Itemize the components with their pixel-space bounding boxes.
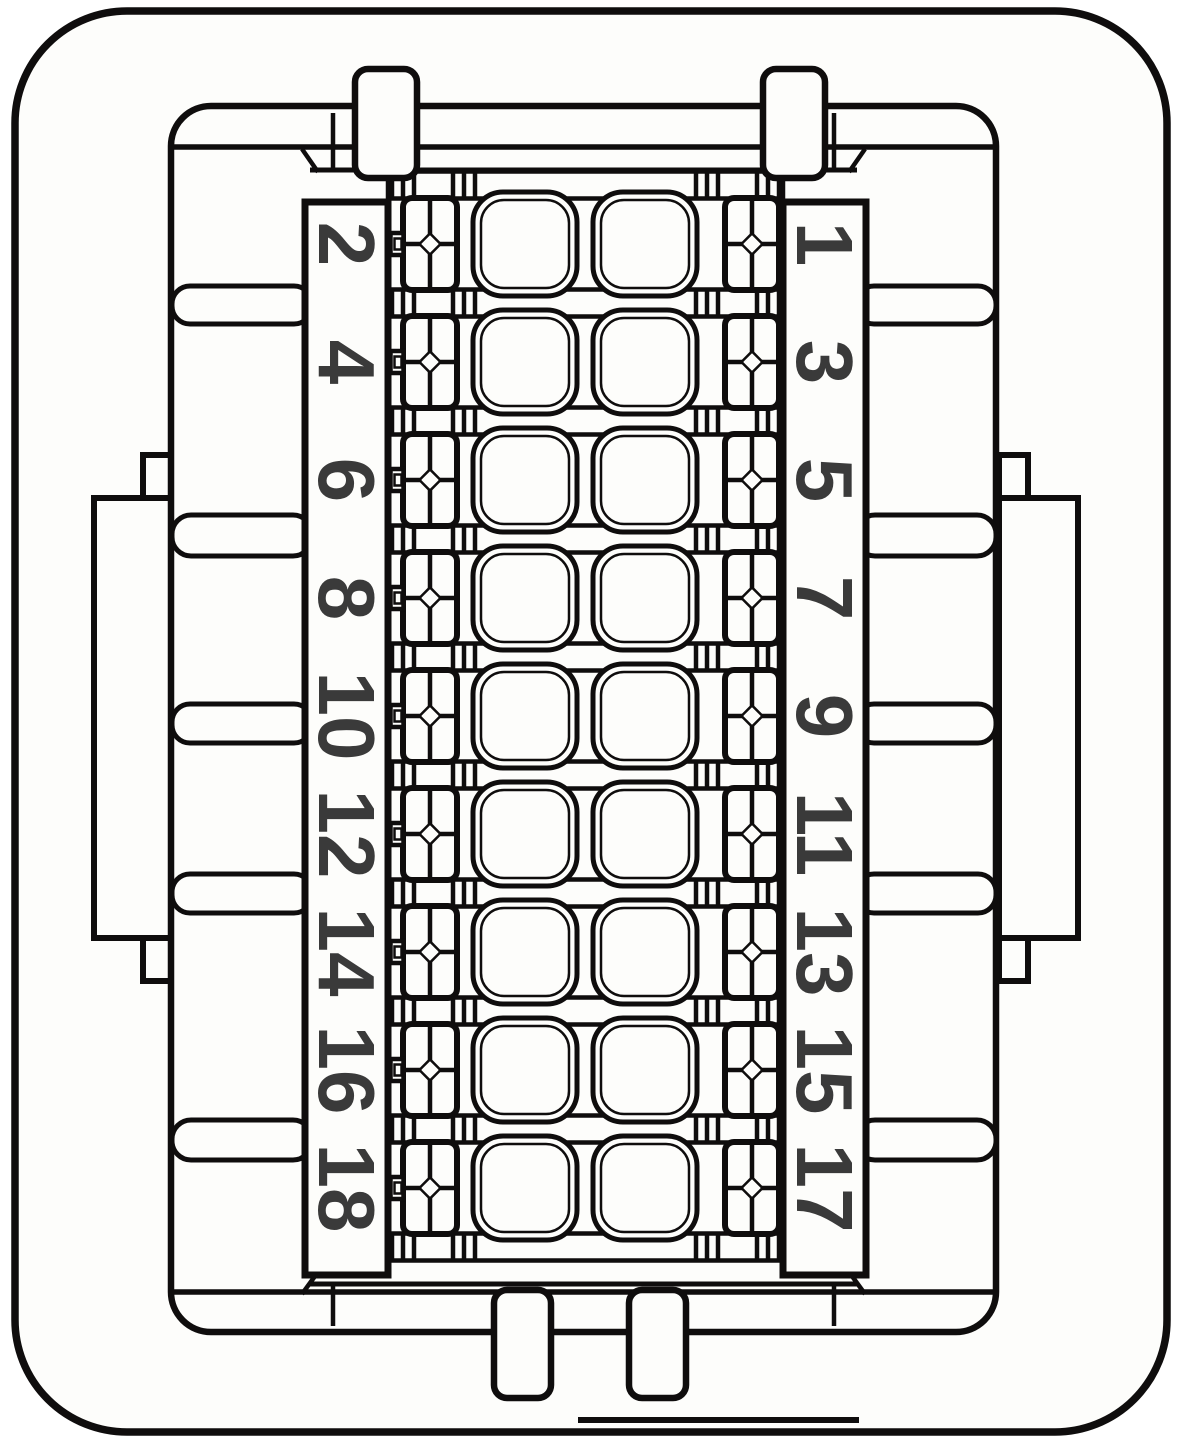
slot-right-5 [856, 1120, 996, 1160]
mounting-tab-bottom-right [629, 1290, 686, 1398]
pin-label: 9 [780, 694, 869, 739]
pin-label: 1 [780, 222, 869, 267]
mounting-tab-top-right [763, 69, 825, 178]
mounting-tab-bottom-left [494, 1290, 551, 1398]
slot-right-3 [856, 704, 996, 743]
right-wing-step-bottom [999, 937, 1028, 981]
slot-right-1 [856, 286, 996, 324]
divider-rail [388, 526, 783, 553]
divider-rail [388, 1234, 783, 1261]
divider-rail [388, 880, 783, 907]
divider-rail [388, 408, 783, 435]
pin-label: 11 [780, 792, 869, 877]
pin-labels-left: 2 4 6 8 10 12 14 16 18 [302, 222, 391, 1233]
slot-left-3 [172, 704, 312, 743]
divider-rail [388, 172, 783, 199]
pin-label: 7 [780, 576, 869, 621]
divider-rail [388, 644, 783, 671]
pin-rows [391, 192, 792, 1240]
divider-rail [388, 998, 783, 1025]
pin-label: 5 [780, 458, 869, 503]
connector-diagram: 2 4 6 8 10 12 14 16 18 1 3 5 7 9 11 13 1… [0, 0, 1182, 1444]
left-wing-plate [94, 498, 172, 938]
pin-labels-right: 1 3 5 7 9 11 13 15 17 [780, 222, 869, 1233]
pin-label: 8 [302, 576, 391, 621]
pin-label: 6 [302, 458, 391, 503]
right-wing-plate [999, 498, 1078, 938]
pin-label: 10 [302, 672, 391, 761]
left-wing-step-bottom [143, 937, 172, 981]
slot-right-2 [856, 515, 996, 556]
slot-left-4 [172, 874, 312, 913]
pin-label: 16 [302, 1026, 391, 1115]
right-wing-step-top [999, 455, 1028, 499]
slot-left-2 [172, 515, 312, 556]
pin-label: 13 [780, 908, 869, 997]
pin-label: 18 [302, 1144, 391, 1233]
left-wing-step-top [143, 455, 172, 499]
pin-label: 17 [780, 1144, 869, 1233]
divider-rail [388, 762, 783, 789]
pin-label: 2 [302, 222, 391, 267]
connector-pinout-svg: 2 4 6 8 10 12 14 16 18 1 3 5 7 9 11 13 1… [0, 0, 1182, 1444]
pin-label: 4 [302, 340, 391, 385]
divider-rail [388, 290, 783, 317]
slot-right-4 [856, 874, 996, 913]
pin-label: 3 [780, 340, 869, 385]
divider-rail [388, 1116, 783, 1143]
pin-label: 12 [302, 790, 391, 879]
left-wing [94, 455, 172, 981]
pin-label: 15 [780, 1026, 869, 1115]
pin-label: 14 [302, 908, 391, 997]
slot-left-5 [172, 1120, 312, 1160]
slot-left-1 [172, 286, 312, 324]
mounting-tab-top-left [355, 69, 417, 178]
right-wing [999, 455, 1078, 981]
